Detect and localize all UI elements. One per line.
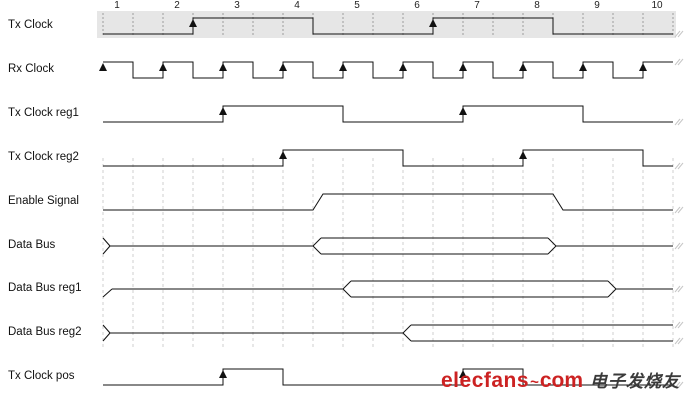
continuation-mark: [675, 286, 683, 292]
continuation-mark: [675, 207, 683, 213]
signal-label-tx-clock-reg1: Tx Clock reg1: [8, 107, 79, 119]
continuation-mark: [675, 31, 683, 37]
rising-edge-arrow-icon: [459, 63, 467, 71]
continuation-mark: [675, 119, 683, 125]
continuation-mark: [675, 382, 683, 388]
signal-label-tx-clock-reg2: Tx Clock reg2: [8, 151, 79, 163]
rising-edge-arrow-icon: [219, 370, 227, 378]
signal-label-data-bus-reg2: Data Bus reg2: [8, 326, 82, 338]
continuation-mark: [675, 59, 683, 65]
rising-edge-arrow-icon: [429, 19, 437, 27]
rising-edge-arrow-icon: [219, 63, 227, 71]
waveform-tx-clock-pos: [103, 369, 673, 385]
signal-label-tx-clock-pos: Tx Clock pos: [8, 370, 74, 382]
signal-label-tx-clock: Tx Clock: [8, 19, 53, 31]
signal-label-rx-clock: Rx Clock: [8, 63, 54, 75]
rising-edge-arrow-icon: [99, 63, 107, 71]
signal-label-data-bus-reg1: Data Bus reg1: [8, 282, 82, 294]
rising-edge-arrow-icon: [519, 151, 527, 159]
rising-edge-arrow-icon: [459, 107, 467, 115]
rising-edge-arrow-icon: [459, 370, 467, 378]
waveform-tx-clock: [103, 18, 673, 34]
signal-label-enable-signal: Enable Signal: [8, 195, 79, 207]
continuation-mark: [675, 163, 683, 169]
rising-edge-arrow-icon: [339, 63, 347, 71]
rising-edge-arrow-icon: [159, 63, 167, 71]
waveform-enable-signal: [103, 194, 673, 210]
signal-label-data-bus: Data Bus: [8, 239, 55, 251]
continuation-mark: [675, 243, 683, 249]
rising-edge-arrow-icon: [399, 63, 407, 71]
waveform-data-bus-reg2: [103, 325, 673, 341]
timing-diagram: 12345678910 Tx ClockRx ClockTx Clock reg…: [0, 0, 689, 400]
rising-edge-arrow-icon: [579, 63, 587, 71]
rising-edge-arrow-icon: [189, 19, 197, 27]
waveform-data-bus: [103, 238, 673, 254]
waveform-canvas: [0, 0, 689, 400]
rising-edge-arrow-icon: [219, 107, 227, 115]
continuation-mark: [675, 338, 683, 344]
rising-edge-arrow-icon: [279, 63, 287, 71]
waveform-data-bus-reg1: [103, 281, 673, 297]
waveform-tx-clock-reg2: [103, 150, 673, 166]
waveform-tx-clock-reg1: [103, 106, 673, 122]
rising-edge-arrow-icon: [639, 63, 647, 71]
continuation-mark: [675, 322, 683, 328]
rising-edge-arrow-icon: [519, 63, 527, 71]
rising-edge-arrow-icon: [279, 151, 287, 159]
waveform-rx-clock: [103, 62, 673, 78]
